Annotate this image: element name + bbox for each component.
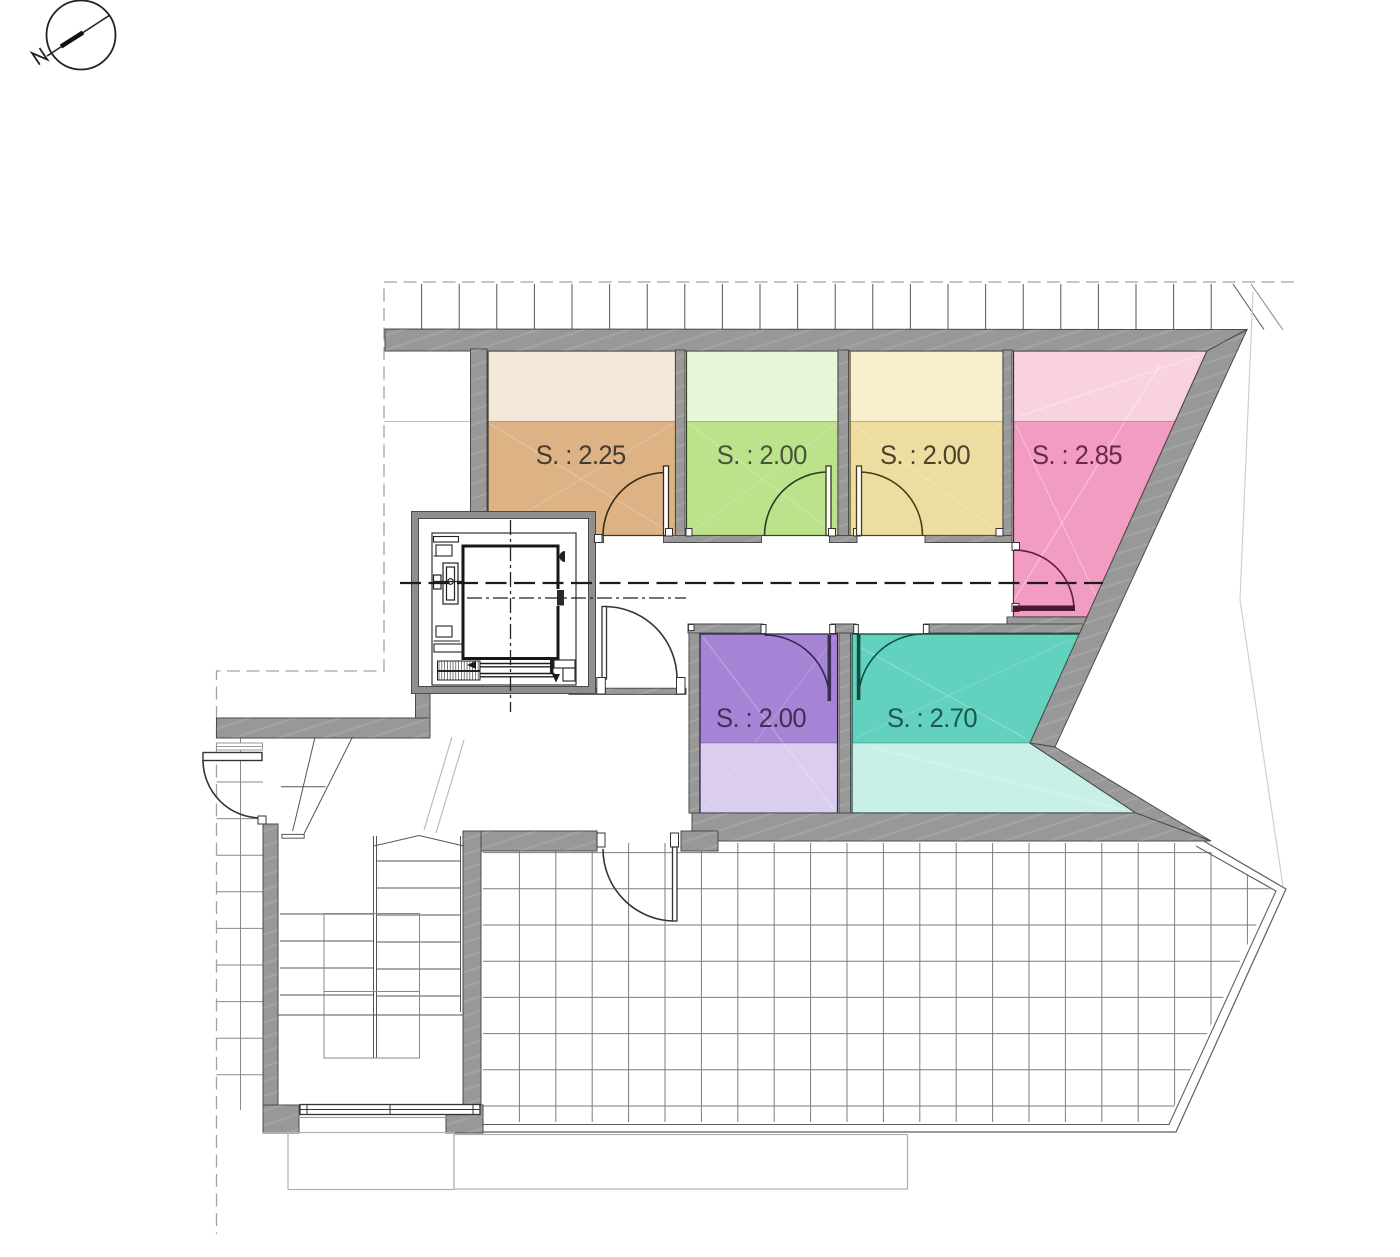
svg-text:S. : 2.00: S. : 2.00 bbox=[880, 440, 970, 470]
svg-text:S. : 2.70: S. : 2.70 bbox=[887, 703, 977, 733]
svg-text:S. : 2.00: S. : 2.00 bbox=[716, 703, 806, 733]
svg-text:S. : 2.00: S. : 2.00 bbox=[717, 440, 807, 470]
svg-text:S. : 2.25: S. : 2.25 bbox=[536, 440, 626, 470]
svg-text:S. : 2.85: S. : 2.85 bbox=[1032, 440, 1122, 470]
